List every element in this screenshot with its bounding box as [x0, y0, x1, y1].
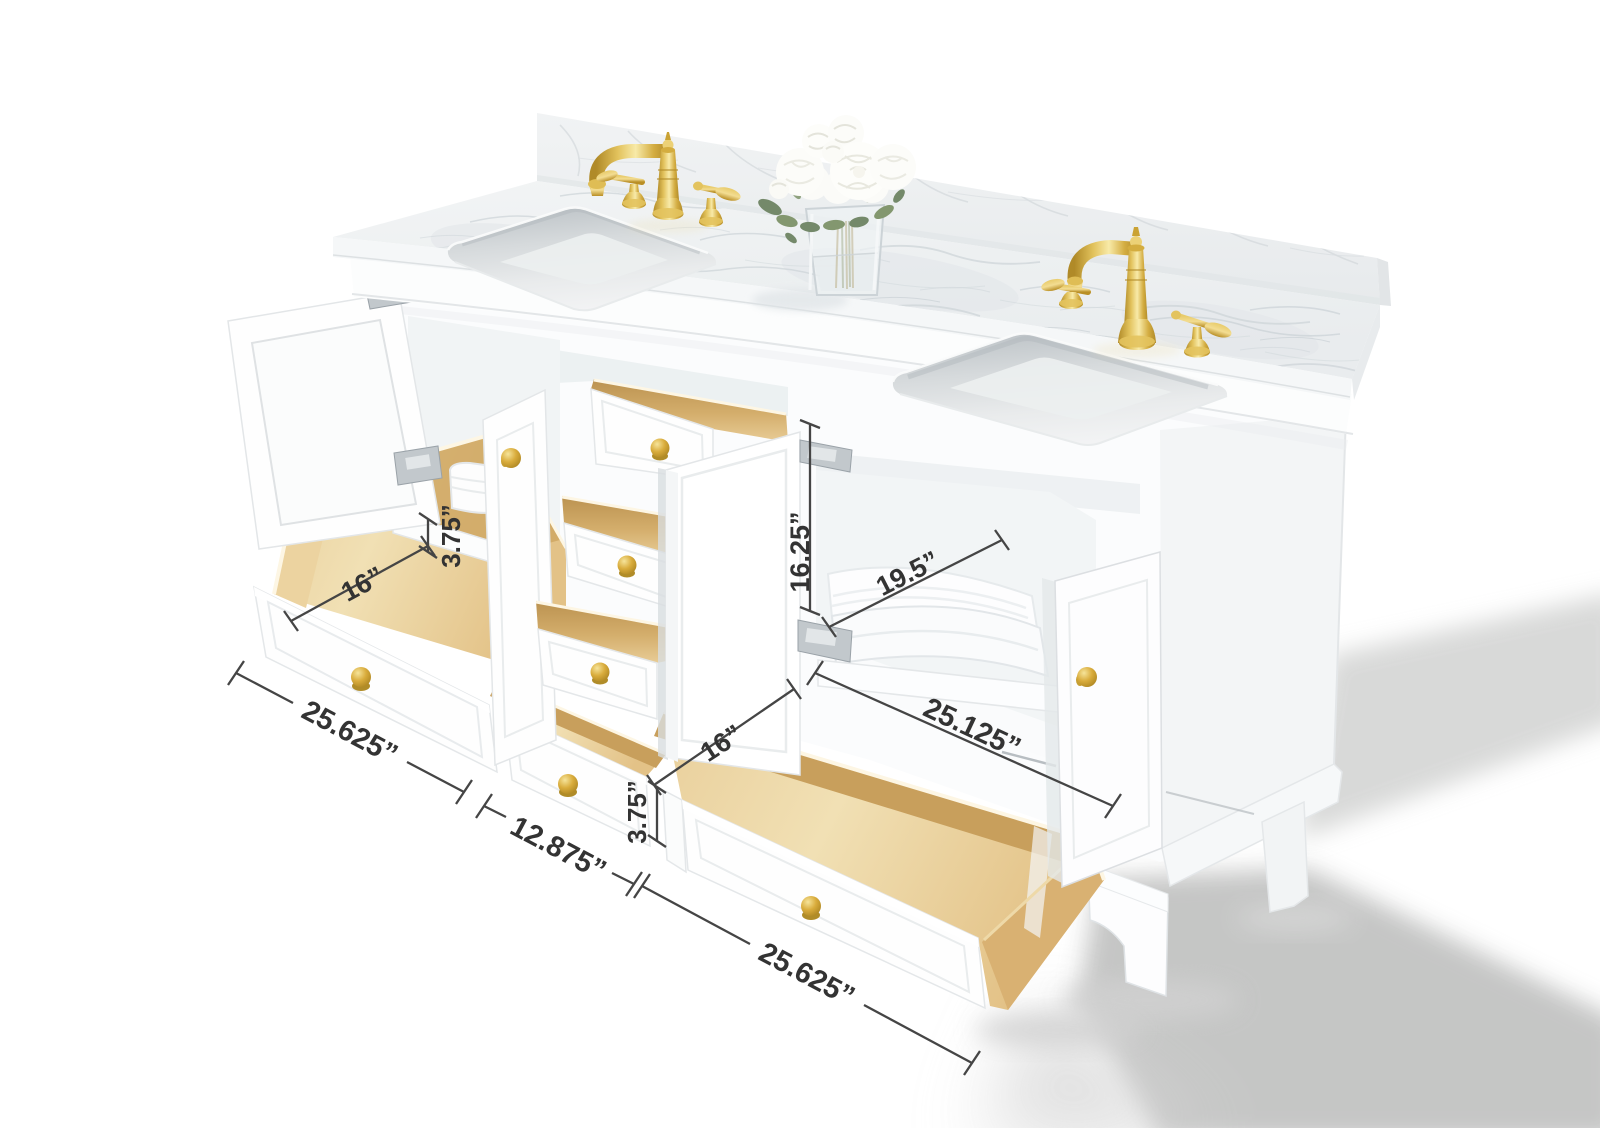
svg-text:3.75”: 3.75” [436, 504, 466, 568]
svg-text:3.75”: 3.75” [622, 780, 652, 844]
svg-text:16.25”: 16.25” [785, 511, 815, 592]
